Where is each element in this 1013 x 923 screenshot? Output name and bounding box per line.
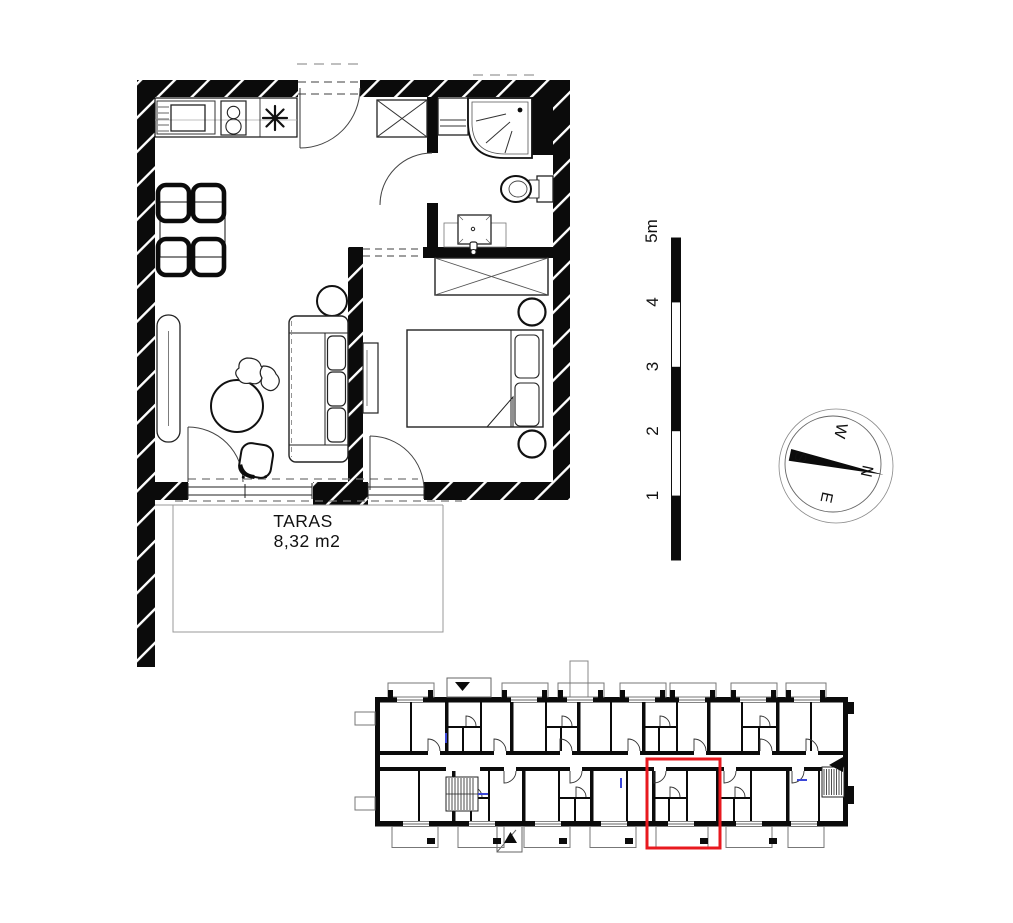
bedroom-terrace-door: [370, 436, 424, 490]
scale-tick-1: 1: [643, 491, 662, 500]
washing-machine-icon: [438, 98, 468, 135]
nightstand: [519, 431, 546, 458]
bedroom-passage-opening: [363, 249, 423, 256]
coffee-table: [211, 380, 263, 432]
corridor-walls: [380, 751, 843, 772]
armchair-stool: [237, 442, 274, 483]
shower-icon: [468, 98, 532, 158]
sofa: [289, 316, 348, 462]
floor-plan-page: TARAS 8,32 m2 5m 4 3 2 1 N E S W: [0, 0, 1013, 923]
terrace-label: TARAS: [273, 511, 333, 531]
compass-north: N: [857, 464, 876, 479]
compass-rose-icon: N E S W: [779, 409, 893, 523]
entrance-door: [300, 88, 360, 148]
stairwell: [446, 777, 478, 811]
toilet-icon: [501, 176, 553, 202]
scale-tick-3: 3: [643, 362, 662, 371]
floor-plan-drawing: TARAS 8,32 m2 5m 4 3 2 1 N E S W: [0, 0, 1013, 923]
terrace-area-label: 8,32 m2: [274, 531, 341, 551]
dining-set: [158, 185, 225, 275]
living-room: [157, 286, 348, 483]
side-table: [317, 286, 347, 316]
scale-tick-4: 4: [643, 297, 662, 306]
entrance-arrow-icon: [455, 682, 470, 691]
double-bed: [407, 330, 543, 427]
fridge-snowflake-icon: [263, 106, 287, 130]
compass-east: E: [817, 490, 836, 504]
dining-chairs: [158, 185, 224, 275]
duct-shaft: [532, 97, 553, 155]
compass-west: W: [830, 422, 850, 441]
terrace: TARAS 8,32 m2: [155, 505, 443, 632]
stairwell: [822, 757, 844, 797]
scale-tick-5m: 5m: [642, 219, 661, 243]
bedroom: [363, 258, 548, 458]
living-terrace-door: [188, 427, 243, 482]
compass-south: S: [790, 450, 809, 464]
hall-wardrobe-icon: [377, 100, 427, 137]
dresser: [363, 343, 378, 413]
terrace-door-sills: [188, 483, 424, 499]
building-overview: [355, 661, 854, 852]
sideboard: [157, 315, 180, 442]
bedroom-wardrobe-icon: [435, 258, 548, 295]
unit-highlight-box: [647, 759, 720, 848]
entrance-arrow-icon: [504, 832, 517, 843]
scale-tick-2: 2: [643, 426, 662, 435]
kitchen: [155, 98, 297, 137]
bathroom-door: [380, 153, 432, 205]
pillow: [515, 335, 539, 378]
pillow: [515, 383, 539, 426]
nightstand: [519, 299, 546, 326]
scale-bar: 5m 4 3 2 1: [642, 219, 681, 560]
apartment-plan: TARAS 8,32 m2: [137, 64, 570, 667]
